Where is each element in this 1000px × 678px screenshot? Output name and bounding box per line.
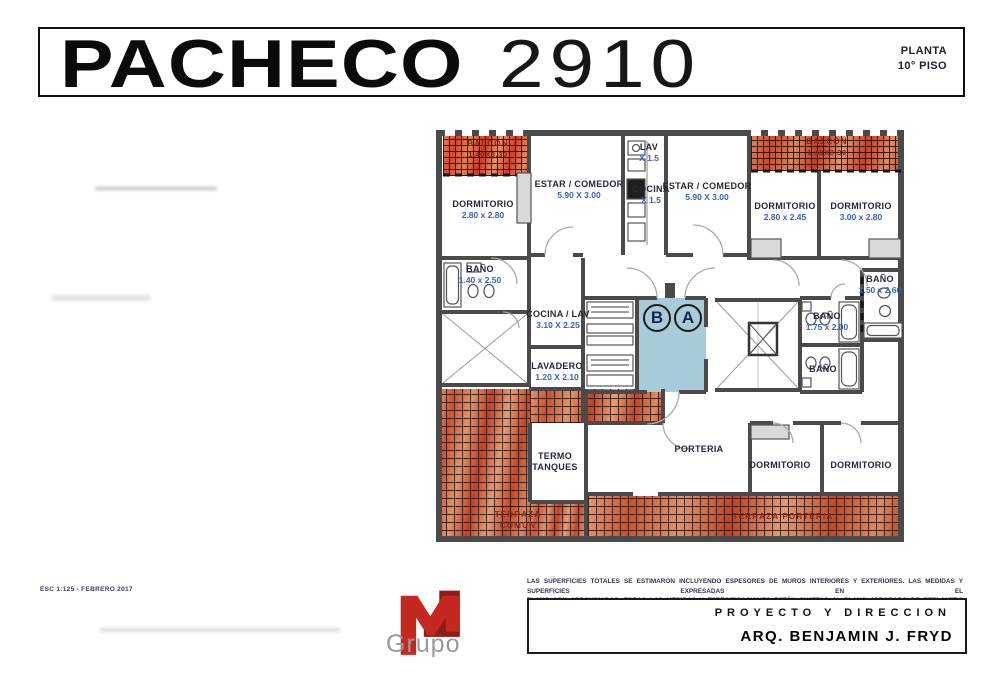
room-label-bano-left: BAÑO 1.40 x 2.50 xyxy=(459,264,502,285)
building-name: PACHECO xyxy=(60,26,464,102)
room-label-bano-mid2: BAÑO xyxy=(809,364,837,375)
room-label-termo-tanques: TERMO TANQUES xyxy=(532,451,577,472)
room-label-dormitorio-p1: DORMITORIO xyxy=(749,460,810,471)
room-label-estar-right: ESTAR / COMEDOR 5.90 X 3.00 xyxy=(663,181,752,202)
title-block: PACHECO2910 PLANTA 10° PISO xyxy=(38,27,965,97)
legal-line-1: LAS SUPERFICIES TOTALES SE ESTIMARON INC… xyxy=(527,577,963,596)
scale-date-note: ESC 1:125 - FEBRERO 2017 xyxy=(40,586,133,593)
room-label-balcon-right: BALCON 1.40X3.30 xyxy=(806,137,847,158)
room-label-dormitorio-tr1: DORMITORIO 2.80 x 2.45 xyxy=(754,201,815,222)
unit-b-label: B xyxy=(651,308,663,328)
floor-plan: B A BALCON 1.40X3.30 BALCON 1.40X3.30 DO… xyxy=(433,127,911,546)
scan-artifact xyxy=(100,628,340,632)
street-number: 2910 xyxy=(499,26,701,102)
scan-artifact xyxy=(95,187,217,190)
room-label-dormitorio-tr2: DORMITORIO 3.00 x 2.80 xyxy=(830,201,891,222)
room-label-terraza-porteria: TERRAZA PORTERIA xyxy=(733,512,834,523)
logo-grupo-text: Grupo xyxy=(386,630,460,659)
building-title: PACHECO2910 xyxy=(60,33,701,114)
plan-label: PLANTA xyxy=(898,44,947,59)
patio-cross xyxy=(443,314,527,383)
room-label-bano-tr: BAÑO 1.50 x 2.60 xyxy=(859,274,902,295)
room-label-dormitorio-tl: DORMITORIO 2.80 x 2.80 xyxy=(452,199,513,220)
room-label-cocina-lav: COCINA / LAV 3.10 X 2.25 xyxy=(526,309,590,330)
scanned-floorplan-page: PACHECO2910 PLANTA 10° PISO xyxy=(0,0,1000,678)
unit-a-marker: A xyxy=(674,304,702,332)
floor-label: 10° PISO xyxy=(898,59,947,74)
room-label-lav: LAV X 1.5 xyxy=(639,142,659,163)
floor-indicator: PLANTA 10° PISO xyxy=(898,44,947,74)
architect-name: ARQ. BENJAMIN J. FRYD xyxy=(740,628,953,645)
room-label-estar-left: ESTAR / COMEDOR 5.90 X 3.00 xyxy=(535,179,624,200)
credit-box: PROYECTO Y DIRECCION ARQ. BENJAMIN J. FR… xyxy=(527,598,967,654)
room-label-lavadero: LAVADERO 1.20 X 2.10 xyxy=(531,361,583,382)
room-label-dormitorio-p2: DORMITORIO xyxy=(830,460,891,471)
room-label-balcon-left: BALCON 1.40X3.30 xyxy=(467,139,508,160)
room-label-terraza-comun: TERRAZA COMUN xyxy=(495,510,542,531)
scan-artifact xyxy=(52,295,150,301)
unit-b-marker: B xyxy=(643,304,671,332)
room-label-bano-mid1: BAÑO 1.75 x 2.00 xyxy=(806,311,849,332)
room-label-porteria: PORTERIA xyxy=(675,444,724,455)
unit-a-label: A xyxy=(682,308,694,328)
stairs xyxy=(717,302,798,388)
credit-title: PROYECTO Y DIRECCION xyxy=(715,607,951,619)
